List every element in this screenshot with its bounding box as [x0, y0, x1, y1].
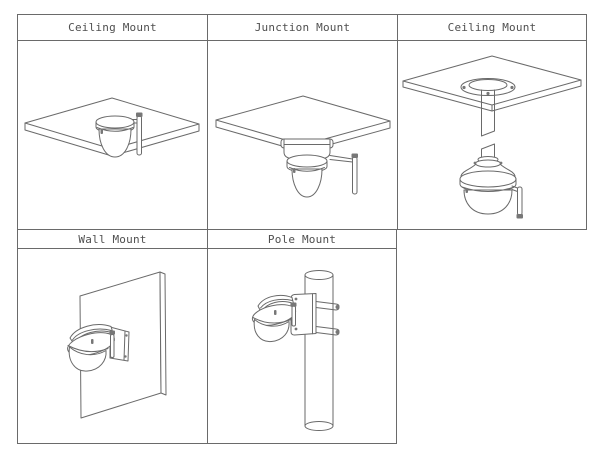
cell-ceiling-mount-pendant: Ceiling Mount	[397, 14, 587, 230]
wall-mount-illustration	[18, 249, 207, 443]
pendant-mount-illustration	[398, 41, 586, 229]
cell-header: Ceiling Mount	[398, 15, 586, 41]
cell-label: Ceiling Mount	[68, 21, 157, 34]
cell-body	[18, 41, 207, 229]
cell-wall-mount: Wall Mount	[17, 229, 208, 444]
cell-label: Wall Mount	[78, 233, 146, 246]
junction-mount-illustration	[208, 41, 397, 229]
cell-body	[208, 41, 397, 229]
dome-camera	[251, 295, 298, 341]
ceiling-mount-illustration	[18, 41, 207, 229]
cell-body	[398, 41, 586, 229]
antenna-icon	[512, 186, 523, 219]
antenna-icon	[110, 331, 116, 358]
cell-pole-mount: Pole Mount	[207, 229, 397, 444]
cell-label: Ceiling Mount	[448, 21, 537, 34]
cell-header: Wall Mount	[18, 230, 207, 249]
pole-mount-illustration	[208, 249, 396, 443]
cell-junction-mount: Junction Mount	[207, 14, 398, 230]
cell-body	[208, 249, 396, 443]
cell-header: Junction Mount	[208, 15, 397, 41]
cell-header: Ceiling Mount	[18, 15, 207, 41]
mount-plate	[461, 79, 515, 96]
pole-straps	[316, 302, 340, 336]
cell-ceiling-mount-direct: Ceiling Mount	[17, 14, 208, 230]
cell-label: Pole Mount	[268, 233, 336, 246]
cell-label: Junction Mount	[255, 21, 351, 34]
dome-camera	[460, 171, 516, 214]
installation-diagram: Ceiling Mount	[0, 0, 600, 459]
antenna-icon	[291, 303, 297, 327]
antenna-icon	[330, 154, 358, 195]
cell-body	[18, 249, 207, 443]
dome-camera	[287, 155, 327, 197]
cell-header: Pole Mount	[208, 230, 396, 249]
